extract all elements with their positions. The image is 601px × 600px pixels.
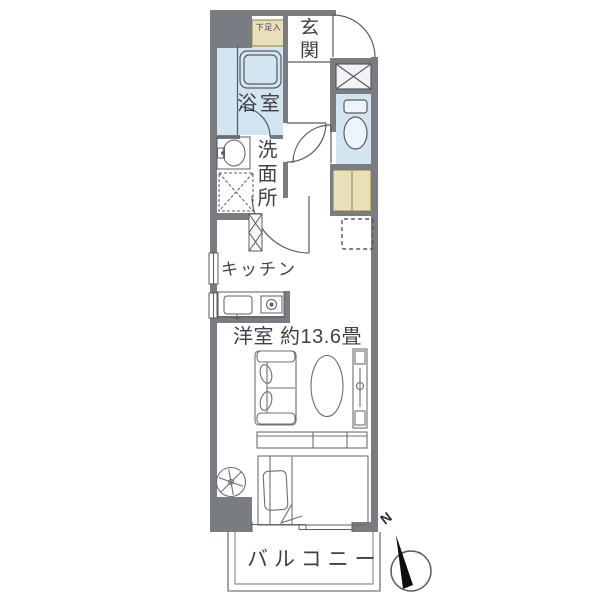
balcony-label: バルコニー: [247, 549, 382, 571]
wall-toilet-left: [330, 58, 336, 132]
wall-hall-left-lower: [283, 162, 288, 198]
bathroom-label: 浴室: [237, 94, 283, 115]
bathroom-floor: [217, 46, 283, 135]
bed: [258, 456, 368, 525]
wall-toilet-bottom: [330, 164, 378, 170]
washroom-door: [287, 123, 326, 162]
entrance-door: [333, 15, 375, 57]
wall-kitchen-stub: [284, 291, 290, 323]
oval-table: [311, 356, 343, 417]
wall-right: [371, 57, 378, 524]
kitchen-label: キッチン: [221, 261, 297, 279]
compass-needle: [396, 535, 413, 589]
compass: [391, 535, 431, 591]
washbasin: [217, 137, 250, 169]
floorplan-drawing: [0, 0, 601, 600]
washroom-label: 洗面所: [254, 139, 275, 211]
toilet-fixture: [344, 100, 367, 149]
pipe-space-strip: [249, 214, 262, 251]
washing-machine-pan: [219, 173, 253, 211]
room-fills: [217, 20, 371, 211]
wall-closet-left: [330, 170, 333, 215]
kitchen-window-upper: [209, 253, 218, 284]
balcony-sliding-window: [252, 522, 352, 532]
wall-closet-bottom: [330, 211, 378, 216]
sofa: [255, 351, 296, 425]
wall-ps-top: [330, 58, 378, 64]
ps-duct-box: [336, 64, 371, 89]
tv-board: [353, 349, 367, 428]
kitchen-counter: [217, 292, 284, 321]
windows: [209, 253, 352, 532]
entrance-label: 玄関: [297, 17, 317, 63]
shoe-box-label: 下足入: [253, 24, 284, 32]
main-room-label: 洋室 約13.6畳: [233, 327, 362, 348]
ceiling-fan: [217, 468, 246, 497]
refrigerator-space: [342, 219, 373, 249]
wall-bottomleft-block: [210, 497, 252, 532]
floorplan-page: 下足入 玄関 浴室 洗面所 キッチン 洋室 約13.6畳 バルコニー N: [0, 0, 601, 600]
wall-ps-bottom: [333, 89, 378, 94]
low-shelf: [257, 432, 367, 448]
